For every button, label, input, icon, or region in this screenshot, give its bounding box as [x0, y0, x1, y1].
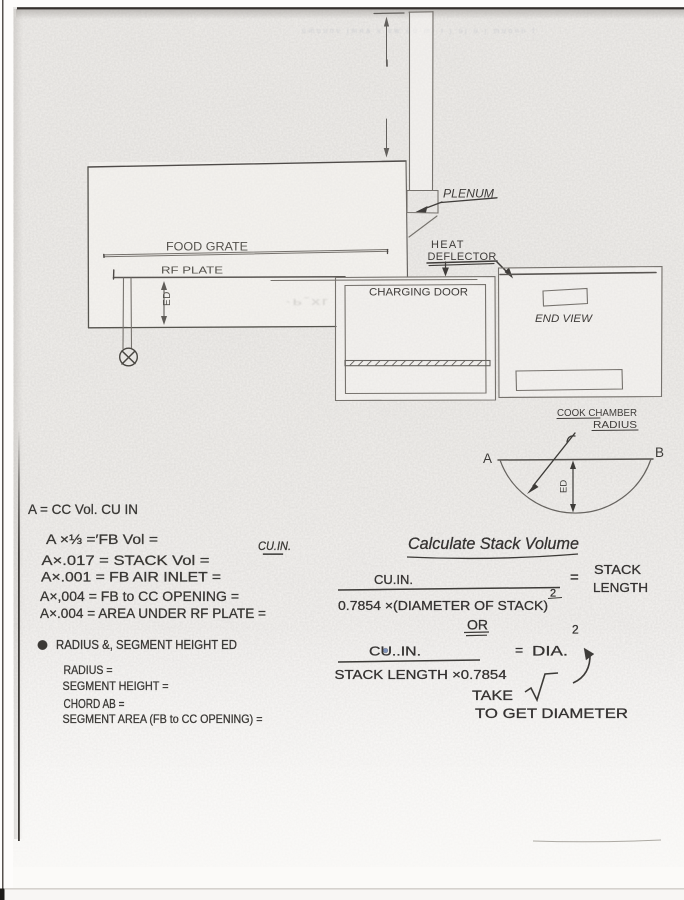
svg-text:TAKE: TAKE [472, 688, 513, 703]
svg-text:RADIUS &, SEGMENT HEIGHT ED: RADIUS &, SEGMENT HEIGHT ED [56, 638, 237, 652]
svg-text:Calculate Stack Volume: Calculate Stack Volume [408, 534, 579, 553]
svg-text:ED: ED [162, 291, 173, 306]
svg-text:TO GET DIAMETER: TO GET DIAMETER [475, 706, 628, 721]
svg-text:ED: ED [559, 480, 570, 493]
svg-text:RADIUS: RADIUS [593, 420, 637, 431]
svg-text:LENGTH: LENGTH [593, 580, 648, 595]
svg-text:FOOD GRATE: FOOD GRATE [166, 242, 248, 254]
svg-text:STACK: STACK [594, 562, 641, 577]
svg-text:=: = [515, 642, 523, 658]
svg-text:HEAT: HEAT [431, 239, 465, 251]
svg-text:A×,004 = FB to CC OPENING =: A×,004 = FB to CC OPENING = [40, 589, 239, 604]
svg-text:CU..IN.: CU..IN. [369, 644, 421, 659]
svg-text:A×.017 = STACK Vol =: A×.017 = STACK Vol = [42, 553, 210, 568]
svg-text:A×.004 = AREA UNDER RF PLATE =: A×.004 = AREA UNDER RF PLATE = [40, 606, 266, 621]
svg-text:DIA.: DIA. [532, 644, 568, 659]
svg-text:CHORD AB =: CHORD AB = [64, 697, 125, 711]
svg-text:RF PLATE: RF PLATE [161, 265, 223, 277]
svg-text:STACK LENGTH ×0.7854: STACK LENGTH ×0.7854 [335, 667, 507, 682]
svg-text:B: B [655, 445, 664, 460]
svg-text:2: 2 [572, 623, 579, 637]
svg-text:A×.001 = FB AIR INLET =: A×.001 = FB AIR INLET = [41, 570, 221, 585]
svg-text:CHARGING DOOR: CHARGING DOOR [369, 287, 468, 299]
svg-text:SEGMENT AREA (FB to CC OPENING: SEGMENT AREA (FB to CC OPENING) = [63, 712, 263, 726]
svg-text:RADIUS =: RADIUS = [64, 663, 113, 677]
svg-text:0.7854 ×(DIAMETER OF STACK): 0.7854 ×(DIAMETER OF STACK) [338, 598, 548, 613]
svg-text:=: = [570, 569, 579, 586]
svg-text:SEGMENT HEIGHT =: SEGMENT HEIGHT = [63, 679, 169, 693]
svg-text:COOK CHAMBER: COOK CHAMBER [557, 408, 637, 419]
svg-text:CU.IN.: CU.IN. [258, 539, 291, 553]
svg-text:A ×⅓ =′FB Vol =: A ×⅓ =′FB Vol = [46, 531, 158, 547]
svg-text:END VIEW: END VIEW [535, 313, 594, 325]
svg-text:·ьˉхг: ·ьˉхг [285, 296, 330, 308]
svg-text:A: A [483, 451, 492, 466]
svg-text:CU.IN.: CU.IN. [374, 572, 413, 587]
svg-text:A = CC Vol. CU IN: A = CC Vol. CU IN [28, 501, 138, 517]
svg-text:OR: OR [467, 617, 488, 633]
